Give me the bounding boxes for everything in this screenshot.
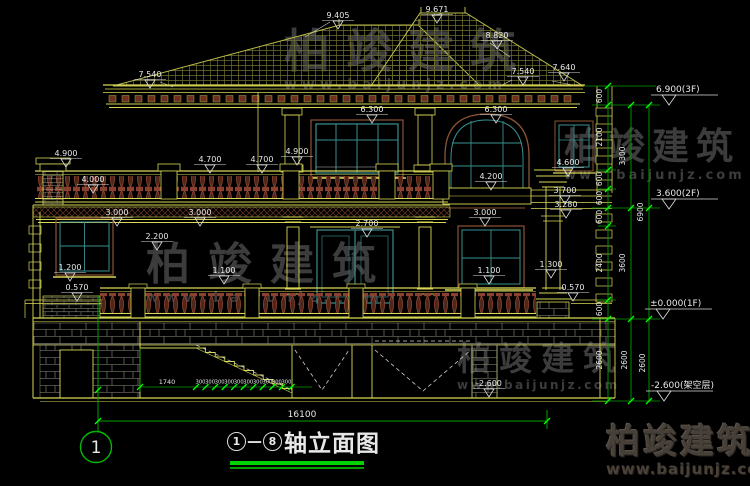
brand-name: 柏竣建筑 [606,426,750,458]
chain-dim-label: 2400 [595,253,604,272]
dim-label: 4.700 [251,155,274,164]
garage-opening [375,341,471,391]
elevation-drawing: 1 9.4059.6718.8207.5407.5407.6406.3006.3… [0,0,750,486]
axis-bubble: 1 [81,432,112,463]
axis-start-bubble: 1 [227,432,246,451]
tread-dim-label: 300 [253,380,263,386]
dim-ticks [95,83,652,424]
dim-label: 2.700 [356,219,379,228]
dim-label: 2.200 [146,232,169,241]
chain-dim-label: 600 [595,89,604,104]
tread-dim-label: 300 [224,380,234,386]
tread-dim-label: 300 [243,380,253,386]
dim-label: 7.640 [553,63,576,72]
title-underline-thin [230,467,364,469]
axis-range-dash: — [247,432,262,450]
dim-label: 4.000 [82,175,105,184]
basement-door [60,350,93,398]
tread-dim-label: 300 [234,380,244,386]
chain-dim-label: 600 [595,172,604,187]
chain-dim-label: 600 [595,210,604,225]
brand-url: www.baijunjz.com [606,460,750,478]
dim-label: 1.200 [59,263,82,272]
dim-label: 4.200 [480,172,503,181]
dim-label: 6.300 [485,105,508,114]
dim-label: 4.700 [199,155,222,164]
dim-label: 3.000 [106,208,129,217]
dim-label: 0.570 [562,283,585,292]
dim-label: 4.600 [557,158,580,167]
tread-dim-label: 300 [215,380,225,386]
dim-label: 4.900 [286,147,309,156]
eave-cornice [103,85,585,108]
dim-label: 8.820 [486,31,509,40]
level-label: 3.600(2F) [656,189,700,199]
dim-label: 1.300 [540,260,563,269]
dim-label: 7.540 [512,67,535,76]
dim-label: 1.100 [213,266,236,275]
drawing-title: 1 — 8 轴立面图 [227,424,380,469]
chain-dim-label: 2100 [595,127,604,146]
basement [33,318,615,402]
tread-dim-label: 300 [262,380,272,386]
chain-dim-label: 3300 [618,146,627,165]
level-label: 6.900(3F) [656,85,700,95]
chain-dim-label: 600 [595,191,604,206]
dim-label: 6.300 [361,105,384,114]
title-underline-thick [230,461,364,465]
dim-label: 16100 [288,410,317,420]
tread-dim-label: 300 [196,380,206,386]
tread-dim-label: 300 [272,380,282,386]
level-label: ±0.000(1F) [650,299,701,309]
garage-opening [295,350,349,390]
dim-label: 1740 [159,378,176,386]
cad-canvas: 柏竣建筑 www.baijunjz.com 柏竣建筑 www.baijunjz.… [0,0,750,486]
dim-label: 3.000 [474,208,497,217]
chain-dim-label: 2600 [620,350,629,369]
chain-dim-label: 2600 [638,353,647,372]
arch-window [443,114,533,290]
dim-label: 9.671 [426,5,449,14]
dim-label: 4.900 [55,149,78,158]
brand-logo-icon [519,421,599,483]
dim-label: 9.405 [327,11,350,20]
axis-number: 1 [91,438,102,458]
dim-label: 3.700 [554,186,577,195]
tread-dim-label: 300 [281,380,291,386]
brand-footer: 柏竣建筑 www.baijunjz.com [519,421,750,483]
chain-dim-label: 600 [595,302,604,317]
axis-end-bubble: 8 [263,432,282,451]
chain-dim-label: 3600 [618,253,627,272]
chain-dim-label: 2600 [595,350,604,369]
dim-label: 3.000 [189,208,212,217]
dim-label: 7.540 [139,70,162,79]
chain-dim-label: 6900 [636,202,645,221]
dim-label: 1.100 [478,266,501,275]
dim-label: 0.570 [66,283,89,292]
dim-label: 3.280 [555,200,578,209]
tread-dim-label: 300 [205,380,215,386]
title-text: 轴立面图 [284,424,380,458]
level-label: -2.600(架空层) [651,379,714,391]
dim-label: -2.600 [476,379,502,388]
